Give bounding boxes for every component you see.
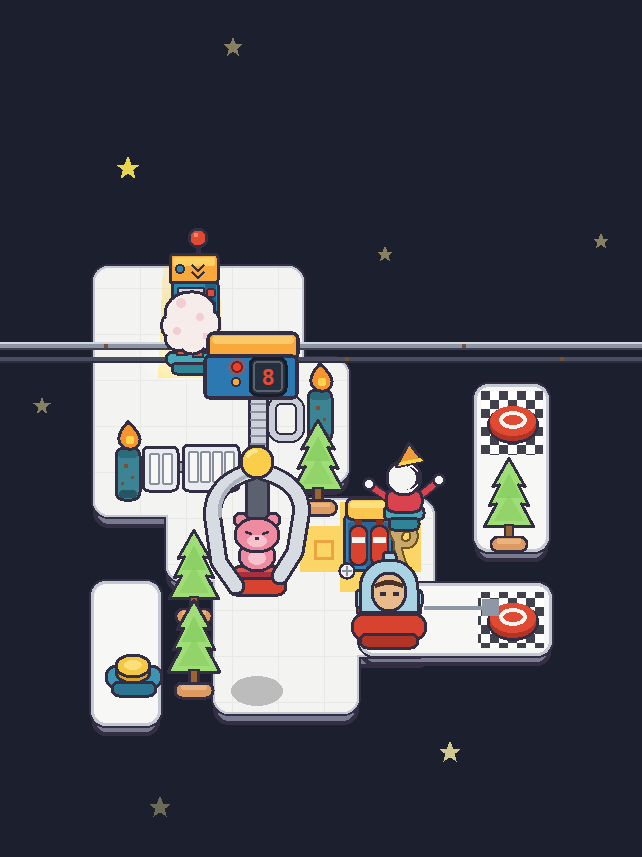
header-dot-icon: [176, 265, 184, 273]
vending-cap-highlight: [350, 501, 388, 508]
ghost-eye: [407, 471, 415, 479]
console-cap-highlight: [212, 336, 294, 344]
bear-nose: [255, 537, 259, 540]
display-digit: 8: [261, 365, 274, 390]
character-eye: [393, 592, 399, 596]
red-tank: [350, 526, 367, 565]
antenna-ball-highlight: [194, 233, 199, 238]
shadow-stain: [231, 676, 283, 706]
ghost-mitten: [364, 479, 375, 490]
bear-muzzle: [247, 535, 267, 548]
coin-highlight: [124, 660, 142, 670]
character-face: [372, 573, 406, 611]
torch: [116, 422, 140, 500]
antenna-ball-icon: [189, 229, 207, 247]
small-yellow-button[interactable]: [232, 378, 240, 386]
goal-button: [487, 406, 539, 444]
ghost-pedestal-bottom: [389, 518, 419, 530]
tank-band: [352, 537, 365, 543]
character-eye: [380, 592, 386, 596]
tank-band: [373, 537, 386, 543]
game-stage: 8: [0, 0, 642, 857]
red-led-icon: [232, 362, 242, 372]
game-scene: 8: [0, 0, 642, 857]
goal-pad-top[interactable]: [481, 391, 543, 455]
ghost-mitten: [434, 475, 445, 486]
character-base-bottom: [360, 634, 418, 648]
